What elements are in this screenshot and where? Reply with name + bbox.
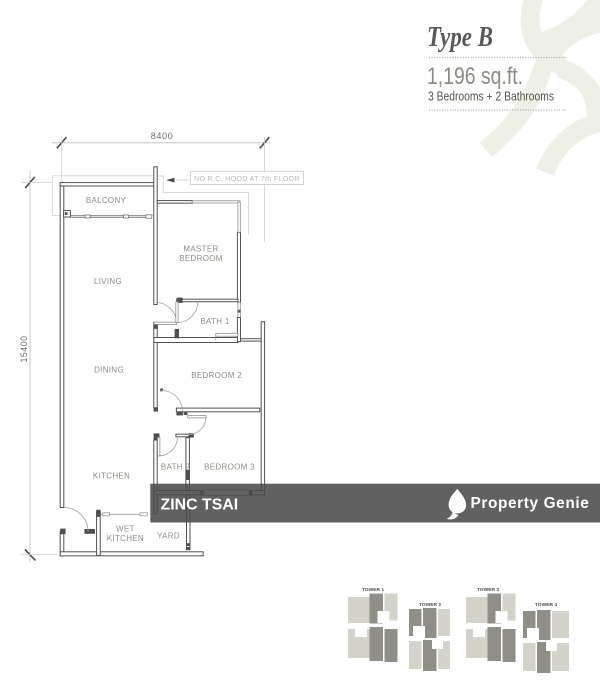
svg-text:ZINC TSAI: ZINC TSAI xyxy=(161,496,240,513)
svg-text:BEDROOM 3: BEDROOM 3 xyxy=(204,463,255,472)
svg-text:TOWER 2: TOWER 2 xyxy=(419,602,441,608)
svg-text:15400: 15400 xyxy=(19,336,29,363)
svg-text:YARD: YARD xyxy=(157,532,180,541)
svg-text:Property Genie: Property Genie xyxy=(471,495,590,512)
svg-text:NO R.C. HOOD AT 7th FLOOR: NO R.C. HOOD AT 7th FLOOR xyxy=(194,174,300,183)
svg-text:TOWER 4: TOWER 4 xyxy=(535,602,557,608)
svg-text:1,196 sq.ft.: 1,196 sq.ft. xyxy=(427,63,523,90)
svg-text:KITCHEN: KITCHEN xyxy=(107,534,144,543)
svg-text:BEDROOM 2: BEDROOM 2 xyxy=(191,371,242,380)
svg-text:BATH 1: BATH 1 xyxy=(200,317,229,326)
svg-text:TOWER 1: TOWER 1 xyxy=(362,587,384,593)
svg-text:TOWER 3: TOWER 3 xyxy=(477,587,499,593)
svg-text:BEDROOM: BEDROOM xyxy=(179,254,222,263)
svg-text:3 Bedrooms + 2 Bathrooms: 3 Bedrooms + 2 Bathrooms xyxy=(428,89,554,104)
svg-text:LIVING: LIVING xyxy=(94,277,122,286)
svg-text:Type B: Type B xyxy=(427,21,493,53)
svg-text:WET: WET xyxy=(116,525,135,534)
svg-text:8400: 8400 xyxy=(151,131,173,141)
svg-text:KITCHEN: KITCHEN xyxy=(93,472,130,481)
svg-text:DINING: DINING xyxy=(94,366,124,375)
svg-text:BATH 2: BATH 2 xyxy=(161,463,190,472)
svg-text:BALCONY: BALCONY xyxy=(86,196,127,205)
svg-text:MASTER: MASTER xyxy=(183,245,218,254)
